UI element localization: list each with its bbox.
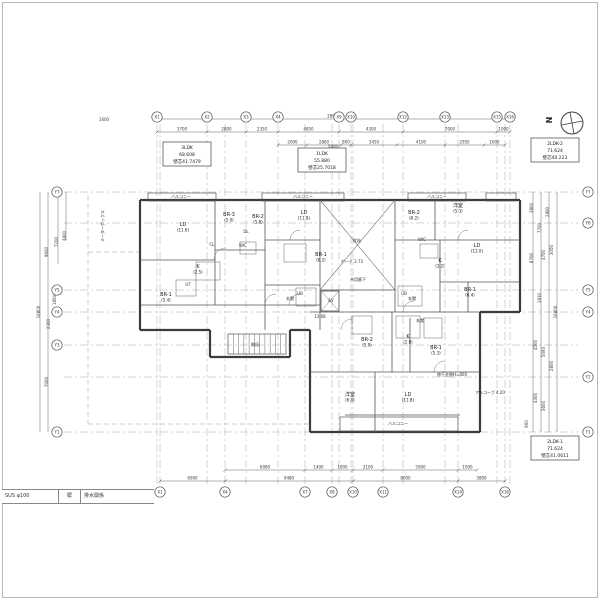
unit-area-box-line: 2LDK-2 — [547, 141, 563, 147]
dim-label-top: 4100 — [416, 140, 427, 145]
annotation-label: バルコニー — [388, 421, 408, 426]
door-swing-arc — [458, 230, 468, 240]
dim-label-bottom: 9480 — [284, 476, 295, 481]
dim-label-bottom: 6080 — [260, 465, 271, 470]
axis-marker-label: X12 — [399, 115, 407, 120]
dim-label-right: 7700 — [537, 222, 542, 233]
axis-marker-label: X15 — [493, 115, 501, 120]
annotation-label: WIC — [418, 237, 426, 242]
floor-plan-page: 2880037002800235048504300700010002000286… — [0, 0, 600, 600]
axis-marker-label: X3 — [243, 115, 249, 120]
annotation-label: EV — [328, 298, 334, 303]
dim-label-top: 2350 — [257, 127, 268, 132]
dim-label-top: 3700 — [177, 127, 188, 132]
unit-area-box-line: 壁芯41.0611 — [541, 452, 569, 459]
axis-marker-label: Y4 — [585, 310, 591, 315]
north-arrow: N — [545, 112, 583, 134]
annotation-label: WIC — [239, 243, 247, 248]
dim-label-right: 4700 — [541, 249, 546, 260]
axis-marker-label: Y7 — [54, 190, 60, 195]
fixture-rect — [284, 244, 306, 262]
annotation-label: ポーチ 2.73 — [341, 258, 364, 264]
room-label: BR-1(5.3) — [430, 345, 442, 356]
axis-marker-label: X16 — [506, 115, 514, 120]
dim-label-top: 1600 — [489, 140, 500, 145]
dim-label-bottom: 1000 — [462, 465, 473, 470]
annotation-label: 玄関 — [416, 317, 424, 323]
dim-label-top: 2800 — [221, 127, 232, 132]
axis-marker-label: Y1 — [585, 430, 591, 435]
annotation-label: バルコニー — [293, 194, 313, 199]
annotation-label: UT — [185, 282, 191, 287]
dim-label-right: 3600 — [541, 400, 546, 411]
unit-area-boxes-layer: 3LDK68.608壁芯41.74791LDK55.880壁芯25.70182L… — [163, 138, 579, 460]
room-label: LD(11.8) — [402, 392, 414, 403]
dim-label-right: 8700 — [529, 252, 534, 263]
room-label: BR-3(5.0) — [223, 212, 235, 223]
dim-label-left: 4800 — [62, 230, 67, 241]
room-label: LD(11.6) — [177, 222, 189, 233]
dim-label-left: 7000 — [44, 376, 49, 387]
dim-label-top: 2950 — [459, 140, 470, 145]
annotation-label: アルコーブ 4.20 — [475, 389, 505, 395]
axis-marker-label: X13 — [441, 115, 449, 120]
axis-marker-label: X7 — [302, 490, 308, 495]
dim-label-right: 4500 — [533, 339, 538, 350]
dim-label-extra: 1600 — [99, 117, 110, 122]
annotation-label: メーターボックス — [99, 210, 105, 242]
annotation-label: バルコニー — [171, 194, 191, 199]
door-swing-arc — [341, 319, 352, 330]
annotation-label: UB — [297, 291, 303, 296]
dim-label-right: 3050 — [549, 244, 554, 255]
dim-label-top: 3450 — [369, 140, 380, 145]
annotation-label: 吹抜 — [353, 237, 361, 243]
unit-area-box-line: 71.624 — [547, 446, 563, 452]
room-label: K(2.5) — [193, 264, 203, 275]
dim-label-top: 800 — [342, 140, 350, 145]
annotation-label: 物干金物H=800 — [437, 371, 467, 377]
title-strip: SUS φ100 塀 排水関係 — [2, 489, 154, 504]
axis-marker-label: X4 — [275, 115, 281, 120]
dim-label-bottom: 2100 — [363, 465, 374, 470]
dim-label-top: 4850 — [303, 127, 314, 132]
annotation-label: バルコニー — [427, 194, 447, 199]
dim-label-right: 2800 — [545, 206, 550, 217]
dim-label-bottom: 1400 — [313, 465, 324, 470]
axis-marker-label: Y5 — [54, 288, 60, 293]
room-label: BR-1(6.4) — [464, 287, 476, 298]
axis-marker-label: X10 — [349, 490, 357, 495]
unit-area-box-line: 2LDK-1 — [547, 439, 563, 445]
room-label: LD(12.0) — [471, 243, 483, 254]
axis-marker-label: X8 — [329, 490, 335, 495]
axis-marker-label: X14 — [454, 490, 462, 495]
axis-marker-label: Y1 — [54, 430, 60, 435]
dim-label-top: 4300 — [366, 127, 377, 132]
fixture-rect — [420, 244, 438, 258]
dim-label-left: 16800 — [36, 305, 41, 318]
room-label: BR-2(5.8) — [252, 214, 264, 225]
dim-label-right: 16800 — [553, 305, 558, 318]
annotation-label: 階段 — [251, 341, 259, 347]
fixture-rect — [352, 316, 372, 334]
annotation-label: 共用廊下 — [350, 276, 366, 282]
unit-area-box-line: 71.624 — [547, 148, 563, 154]
axis-marker-label: Y7 — [585, 190, 591, 195]
room-label: 洋室(6.0) — [345, 391, 355, 403]
room-label: BR-2(5.9) — [361, 337, 373, 348]
dim-label-bottom: 1800 — [337, 465, 348, 470]
axis-marker-label: X9 — [336, 115, 342, 120]
title-strip-cell-category: 排水関係 — [81, 490, 154, 503]
dim-label-bottom: 8000 — [400, 476, 411, 481]
annotation-label: 玄関 — [286, 295, 294, 301]
door-swing-arc — [403, 301, 414, 312]
door-swing-arc — [265, 294, 276, 305]
unit-area-box-line: 壁芯40.223 — [543, 154, 568, 161]
annotation-label: DL — [243, 229, 249, 234]
door-swing-arc — [290, 230, 300, 240]
axis-marker-label: X4 — [222, 490, 228, 495]
axis-marker-label: Y2 — [585, 375, 591, 380]
dim-label-left: 7200 — [54, 236, 59, 247]
annotation-label: 13.08 — [314, 314, 326, 319]
door-swing-arc — [434, 361, 445, 372]
axis-marker-label: X2 — [204, 115, 210, 120]
room-label: 洋室(5.3) — [453, 202, 463, 214]
north-label: N — [545, 117, 554, 124]
unit-area-box-line: 3LDK — [181, 145, 194, 151]
dim-label-right: 3800 — [529, 202, 534, 213]
room-label: BR-1(6.2) — [315, 252, 327, 263]
annotation-label: UB — [401, 291, 407, 296]
unit-area-box-line: 68.608 — [179, 152, 195, 158]
room-label: LD(11.8) — [298, 210, 310, 221]
dim-label-bottom: 6900 — [187, 476, 198, 481]
room-label: BR-1(5.4) — [160, 292, 172, 303]
annotation-label: CL — [209, 242, 215, 247]
unit-area-box-line: 壁芯41.7479 — [173, 158, 201, 165]
dim-label-right: 2800 — [549, 360, 554, 371]
axis-marker-label: Y3 — [54, 343, 60, 348]
dim-label-top: 2000 — [287, 140, 298, 145]
unit-area-box-line: 壁芯25.7018 — [308, 164, 336, 171]
title-strip-cell-symbol: 塀 — [59, 490, 81, 503]
dim-label-bottom: 5900 — [415, 465, 426, 470]
unit-area-box-line: 1LDK — [316, 151, 329, 157]
dim-label-top: 7000 — [445, 127, 456, 132]
dim-label-right: 5093 — [541, 346, 546, 357]
room-label: K(3.2) — [435, 258, 445, 269]
axis-marker-label: X11 — [379, 490, 387, 495]
dim-label-bottom: 3800 — [476, 476, 487, 481]
axis-marker-label: Y4 — [54, 310, 60, 315]
room-label: BR-2(6.2) — [408, 210, 420, 221]
title-strip-cell-spec: SUS φ100 — [2, 490, 59, 503]
axis-marker-label: X16 — [501, 490, 509, 495]
axis-marker-label: X10 — [347, 115, 355, 120]
dim-label-left: 9600 — [44, 246, 49, 257]
axis-marker-label: X1 — [154, 115, 160, 120]
annotation-label: 玄関 — [408, 295, 416, 301]
dim-label-left: 2300 — [46, 318, 51, 329]
fixture-rect — [424, 318, 442, 338]
dim-label-top: 1000 — [498, 127, 509, 132]
floor-plan-canvas: 2880037002800235048504300700010002000286… — [0, 0, 600, 600]
unit-area-box-line: 55.880 — [314, 158, 330, 164]
axis-marker-label: Y6 — [585, 221, 591, 226]
axis-marker-label: X1 — [157, 490, 163, 495]
dim-label-right: 900 — [524, 420, 529, 428]
dim-label-right: 4300 — [533, 392, 538, 403]
dim-label-right: 1830 — [537, 292, 542, 303]
room-label: K(2.8) — [403, 334, 413, 345]
walls-layer — [140, 193, 520, 432]
axis-marker-label: Y5 — [585, 288, 591, 293]
dim-label-left: 1800 — [52, 294, 57, 305]
